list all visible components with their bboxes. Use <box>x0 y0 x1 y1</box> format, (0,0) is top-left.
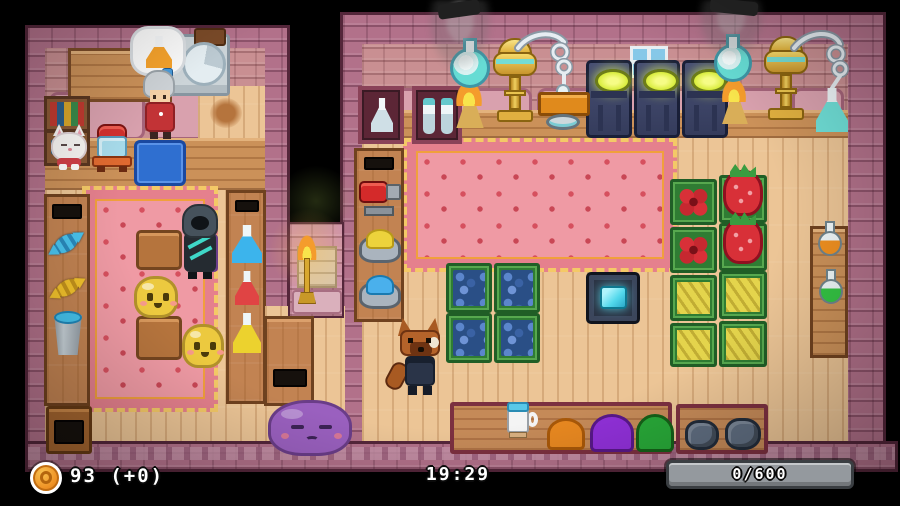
blueberries <box>453 320 485 356</box>
cauldron-machine[interactable] <box>634 60 680 138</box>
fox-eye <box>426 338 431 343</box>
fox-nose <box>418 347 424 352</box>
hooded-customer[interactable] <box>180 204 220 280</box>
blueberry-crate[interactable] <box>446 263 492 313</box>
shelf-slot <box>235 200 259 212</box>
pad-crystal-icon <box>600 286 627 309</box>
strawberry-crate[interactable] <box>719 223 767 271</box>
blue-counter-mat <box>134 140 186 186</box>
storage-cabinet <box>264 316 314 406</box>
purple-slime[interactable] <box>268 400 352 456</box>
potion-shelf <box>226 190 266 404</box>
banana-crate[interactable] <box>670 275 717 321</box>
teleport-pad[interactable] <box>586 272 640 324</box>
bench <box>136 316 182 360</box>
display-case <box>358 86 404 144</box>
torch-base <box>298 292 316 304</box>
machine-deck <box>687 91 723 98</box>
orange-powder-pile[interactable] <box>547 418 585 450</box>
extinguisher-tank[interactable] <box>359 181 403 205</box>
bucket-water <box>54 311 82 324</box>
left-item-shelf <box>44 194 90 406</box>
shelf-slot <box>52 204 82 219</box>
glow-vat-icon <box>595 69 631 93</box>
tank-red <box>359 181 388 203</box>
slime-frown <box>305 436 319 444</box>
books-row <box>50 102 84 126</box>
slime-shine <box>281 409 303 419</box>
player-fox[interactable] <box>398 318 442 398</box>
machine-deck <box>591 91 627 98</box>
npc-button <box>159 112 163 116</box>
candy-yellow[interactable] <box>41 263 94 313</box>
ore-pile[interactable] <box>685 420 719 450</box>
cat-paw <box>71 164 79 170</box>
case-tube-icon <box>441 98 453 134</box>
blueberries <box>453 270 485 306</box>
alembic-base <box>497 110 533 122</box>
npc-eye <box>163 95 166 99</box>
slime-cheek <box>217 350 224 355</box>
side-table <box>810 226 848 358</box>
white-cat-creature[interactable] <box>50 124 88 170</box>
mug[interactable] <box>507 400 539 440</box>
slime-eye <box>291 425 304 429</box>
cat-paw <box>59 164 67 170</box>
banana-crate[interactable] <box>719 271 767 319</box>
potion-jar-machine[interactable] <box>92 124 132 172</box>
shopkeeper-npc[interactable] <box>140 68 180 140</box>
coin-icon <box>30 462 62 494</box>
machine-deck <box>639 91 675 98</box>
mixing-bowl[interactable] <box>546 114 580 130</box>
cabinet-slot <box>273 369 307 387</box>
machine-vent <box>616 105 621 131</box>
flower-crate[interactable] <box>670 227 717 273</box>
alembic-base <box>768 108 804 120</box>
blueberry-crate[interactable] <box>494 263 540 313</box>
bananas <box>677 330 710 360</box>
condenser-coil-icon <box>788 28 860 98</box>
blue-powder-bowl[interactable] <box>359 281 401 309</box>
ore-pile[interactable] <box>725 418 761 450</box>
work-table <box>538 92 590 116</box>
ingredient-table <box>450 402 672 454</box>
banana-crate[interactable] <box>719 321 767 367</box>
green-powder-pile[interactable] <box>636 414 674 452</box>
bananas <box>677 282 710 314</box>
machine-vent <box>598 105 603 131</box>
fox-head <box>400 330 440 356</box>
game-viewport: 93 (+0) 19:29 0/600 <box>0 0 900 506</box>
slime-eye <box>163 293 169 301</box>
hood <box>182 204 218 238</box>
cat-nose <box>68 148 72 151</box>
red-flowers <box>677 234 710 266</box>
slime-shine <box>142 283 154 290</box>
fox-foot <box>408 386 417 395</box>
right-carpet <box>403 138 677 272</box>
slime-mouth <box>154 303 162 308</box>
blueberries <box>501 270 533 306</box>
cauldron-machine[interactable] <box>586 60 632 138</box>
jar-foot <box>119 166 127 172</box>
red-flowers <box>677 186 710 218</box>
glow-vat-icon <box>643 69 679 93</box>
coin-glyph <box>40 471 52 484</box>
blueberries <box>501 320 533 356</box>
workshop-item-shelf <box>354 148 404 322</box>
npc-eye <box>153 95 156 99</box>
slime-cheek <box>281 433 289 439</box>
ore-table <box>676 404 768 454</box>
npc-body <box>145 102 175 132</box>
floor-stain <box>210 98 242 128</box>
slime-cheek <box>140 301 147 306</box>
potion-green[interactable] <box>819 269 843 307</box>
potion-body <box>819 279 843 304</box>
small-table <box>46 406 92 454</box>
tank-gray <box>386 184 401 200</box>
banana-crate[interactable] <box>670 323 717 367</box>
slime-eye <box>319 425 332 429</box>
flask-red[interactable] <box>235 271 259 305</box>
slime-mouth <box>201 352 209 357</box>
passage-glow <box>278 165 354 237</box>
table-slot <box>54 420 84 444</box>
mug-drink <box>507 402 529 412</box>
carpet-field <box>416 151 664 259</box>
jar-glass <box>97 136 127 158</box>
machine-vent <box>664 105 669 131</box>
slime-eye <box>210 342 216 350</box>
potion-body <box>818 231 842 256</box>
blueberry-crate[interactable] <box>494 313 540 363</box>
machine-vent <box>646 105 651 131</box>
torch-pole <box>304 258 310 294</box>
progress-label: 0/600 <box>669 463 851 486</box>
torch-flame-icon <box>296 232 318 260</box>
bananas <box>726 278 760 312</box>
yellow-slime[interactable] <box>182 324 224 368</box>
shelf-slot <box>364 157 394 170</box>
money-counter: 93 (+0) <box>70 465 164 487</box>
flask-yellow[interactable] <box>233 313 261 353</box>
potion-request-icon <box>146 36 172 68</box>
wall-clock <box>182 42 226 86</box>
bananas <box>726 328 760 360</box>
flower-crate[interactable] <box>670 179 717 225</box>
fox-body <box>405 356 435 386</box>
yellow-powder-bowl[interactable] <box>359 235 401 263</box>
blueberry-crate[interactable] <box>446 313 492 363</box>
hooded-foot <box>188 272 197 279</box>
hooded-foot <box>203 272 212 279</box>
mug-base <box>509 432 527 438</box>
case-flask-icon <box>371 98 393 132</box>
machine-vent <box>712 105 717 131</box>
wall-torch <box>294 232 320 310</box>
potion-orange[interactable] <box>818 221 842 259</box>
powder-mound <box>366 229 394 249</box>
case-tube-icon <box>423 98 435 134</box>
progress-bar: 0/600 <box>666 460 854 489</box>
npc-foot <box>163 132 171 139</box>
slime-eye <box>194 342 200 350</box>
slime-cheek <box>334 433 342 439</box>
machine-vent <box>694 105 699 131</box>
cat-eye <box>61 144 67 146</box>
fox-foot <box>423 386 432 395</box>
flask-blue[interactable] <box>232 225 262 263</box>
npc-foot <box>150 132 158 139</box>
bench <box>136 230 182 270</box>
purple-powder-pile[interactable] <box>590 414 634 452</box>
slime-shine <box>190 331 201 338</box>
yellow-slime[interactable] <box>134 276 178 318</box>
cat-eye <box>74 144 80 146</box>
tank-base <box>364 206 394 216</box>
hood-face <box>191 216 209 230</box>
powder-mound <box>366 275 394 295</box>
slime-cheek <box>187 350 194 355</box>
slime-cheek <box>170 301 177 306</box>
candy-blue[interactable] <box>39 216 95 270</box>
slime-eye <box>147 293 153 301</box>
clock-display: 19:29 <box>398 464 518 485</box>
fox-eye <box>408 338 413 343</box>
jar-foot <box>97 166 105 172</box>
